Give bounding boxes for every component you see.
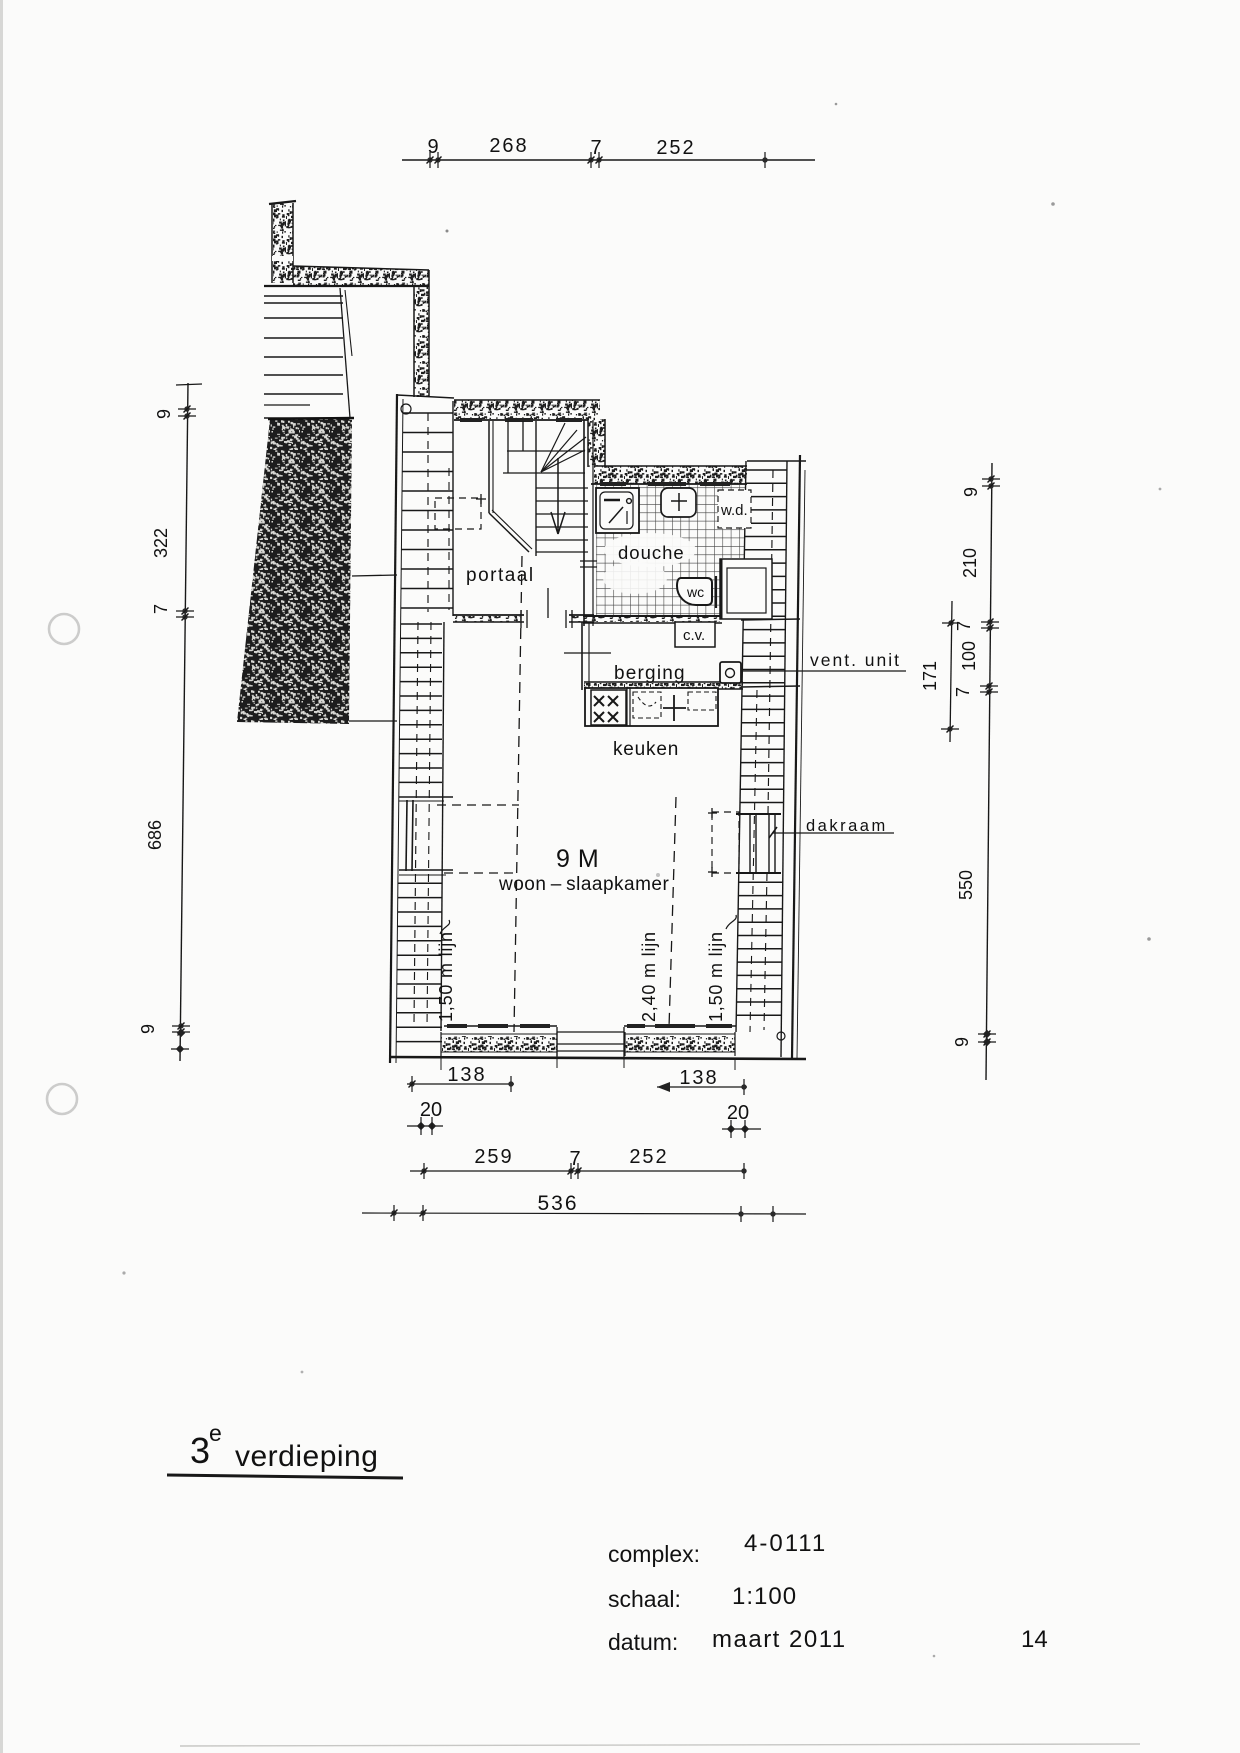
svg-text:20: 20 bbox=[727, 1102, 749, 1124]
svg-text:9: 9 bbox=[952, 1037, 972, 1047]
svg-text:268: 268 bbox=[489, 135, 528, 157]
svg-text:wc: wc bbox=[686, 584, 704, 600]
svg-text:portaal: portaal bbox=[466, 565, 535, 586]
svg-text:536: 536 bbox=[537, 1192, 578, 1215]
svg-text:1:100: 1:100 bbox=[732, 1583, 797, 1610]
svg-text:252: 252 bbox=[629, 1146, 668, 1168]
svg-text:550: 550 bbox=[956, 870, 976, 900]
svg-text:woon – slaapkamer: woon – slaapkamer bbox=[498, 874, 669, 895]
svg-text:7: 7 bbox=[953, 687, 973, 697]
svg-text:9: 9 bbox=[961, 487, 981, 497]
svg-text:7: 7 bbox=[590, 137, 601, 159]
svg-text:9 M: 9 M bbox=[556, 845, 599, 873]
svg-text:e: e bbox=[209, 1420, 222, 1446]
svg-text:1,50 m lijn: 1,50 m lijn bbox=[706, 931, 726, 1022]
svg-text:20: 20 bbox=[420, 1099, 442, 1121]
svg-text:datum:: datum: bbox=[608, 1629, 678, 1655]
svg-text:100: 100 bbox=[959, 641, 979, 671]
svg-text:berging: berging bbox=[614, 663, 686, 684]
svg-text:3: 3 bbox=[190, 1430, 210, 1471]
svg-text:171: 171 bbox=[920, 661, 940, 691]
svg-text:douche: douche bbox=[618, 542, 685, 563]
svg-text:complex:: complex: bbox=[608, 1541, 700, 1567]
svg-text:259: 259 bbox=[474, 1146, 513, 1168]
svg-text:vent. unit: vent. unit bbox=[810, 650, 901, 670]
svg-text:322: 322 bbox=[151, 528, 171, 558]
svg-text:9: 9 bbox=[138, 1024, 158, 1034]
svg-text:verdieping: verdieping bbox=[235, 1440, 378, 1473]
svg-text:9: 9 bbox=[154, 409, 174, 419]
svg-text:686: 686 bbox=[145, 820, 165, 850]
svg-text:138: 138 bbox=[679, 1067, 718, 1089]
svg-text:138: 138 bbox=[447, 1064, 486, 1086]
svg-text:252: 252 bbox=[656, 137, 695, 159]
svg-text:c.v.: c.v. bbox=[683, 627, 705, 644]
svg-text:w.d.: w.d. bbox=[720, 502, 748, 519]
svg-text:7: 7 bbox=[151, 604, 171, 614]
svg-text:1,50 m lijn: 1,50 m lijn bbox=[436, 931, 456, 1022]
svg-text:2,40 m lijn: 2,40 m lijn bbox=[639, 931, 659, 1022]
svg-text:7: 7 bbox=[569, 1148, 580, 1170]
svg-text:14: 14 bbox=[1021, 1626, 1048, 1653]
svg-text:maart 2011: maart 2011 bbox=[712, 1626, 847, 1653]
svg-text:dakraam: dakraam bbox=[806, 817, 888, 835]
svg-text:4-0111: 4-0111 bbox=[744, 1530, 827, 1557]
svg-text:9: 9 bbox=[427, 136, 438, 158]
svg-text:210: 210 bbox=[960, 548, 980, 578]
svg-text:schaal:: schaal: bbox=[608, 1586, 681, 1612]
svg-text:keuken: keuken bbox=[613, 739, 679, 760]
